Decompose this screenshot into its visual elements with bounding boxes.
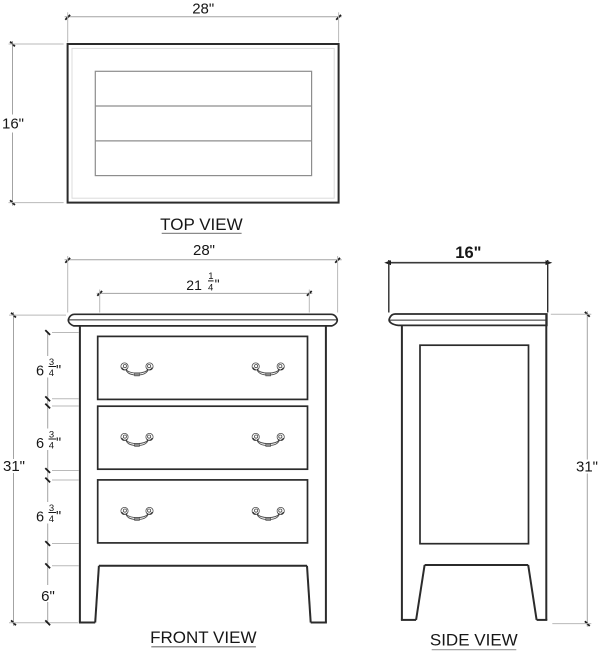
svg-text:6: 6 xyxy=(36,510,44,526)
svg-text:TOP VIEW: TOP VIEW xyxy=(160,215,243,234)
svg-text:4: 4 xyxy=(208,283,213,294)
svg-text:31": 31" xyxy=(576,458,598,475)
svg-text:1: 1 xyxy=(208,271,213,282)
svg-text:31": 31" xyxy=(3,458,25,475)
svg-text:28": 28" xyxy=(192,1,214,18)
svg-text:16": 16" xyxy=(2,116,24,133)
svg-text:6: 6 xyxy=(36,364,44,380)
svg-text:SIDE VIEW: SIDE VIEW xyxy=(430,630,518,649)
svg-text:": " xyxy=(56,435,61,451)
svg-text:4: 4 xyxy=(49,368,54,379)
svg-text:4: 4 xyxy=(49,514,54,525)
svg-text:": " xyxy=(56,509,61,525)
svg-text:4: 4 xyxy=(49,441,54,452)
svg-text:28": 28" xyxy=(193,242,215,259)
svg-text:16": 16" xyxy=(455,244,481,262)
svg-text:": " xyxy=(56,363,61,379)
svg-text:FRONT VIEW: FRONT VIEW xyxy=(150,628,256,647)
svg-text:6": 6" xyxy=(41,588,55,605)
svg-text:6: 6 xyxy=(36,436,44,452)
svg-text:21: 21 xyxy=(186,277,202,293)
svg-text:": " xyxy=(215,276,220,292)
